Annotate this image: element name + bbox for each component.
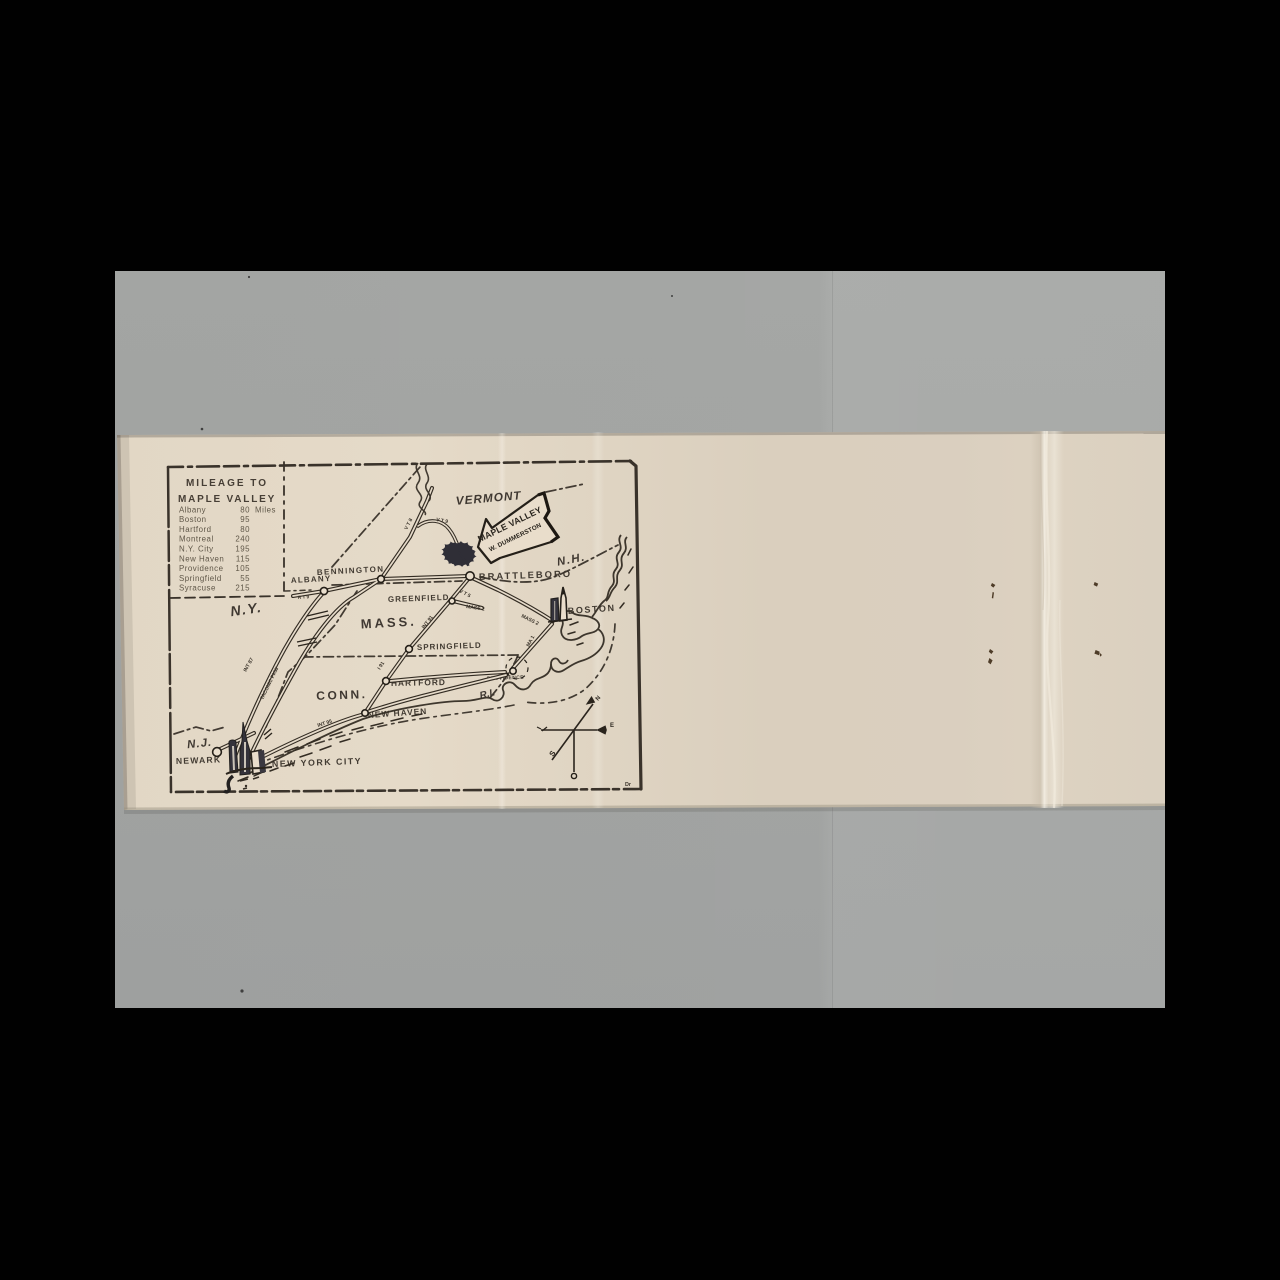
svg-text:Hartford: Hartford	[179, 525, 212, 534]
svg-text:105: 105	[235, 564, 250, 573]
svg-text:Miles: Miles	[255, 505, 276, 514]
svg-text:Providence: Providence	[179, 564, 224, 573]
svg-text:New Haven: New Haven	[179, 554, 224, 563]
svg-text:80: 80	[240, 525, 250, 534]
svg-text:Boston: Boston	[179, 515, 207, 524]
svg-text:MILEAGE TO: MILEAGE TO	[186, 478, 268, 489]
svg-text:E: E	[610, 723, 614, 729]
svg-text:Montreal: Montreal	[179, 535, 214, 544]
svg-text:115: 115	[236, 554, 250, 563]
svg-text:95: 95	[240, 515, 250, 524]
svg-text:Albany: Albany	[179, 505, 206, 514]
svg-text:MAPLE VALLEY: MAPLE VALLEY	[178, 494, 276, 505]
svg-text:240: 240	[235, 535, 250, 544]
svg-text:80: 80	[240, 505, 250, 514]
svg-text:55: 55	[240, 574, 250, 583]
svg-text:Springfield: Springfield	[179, 574, 222, 583]
svg-text:195: 195	[235, 545, 250, 554]
svg-text:Syracuse: Syracuse	[179, 584, 216, 593]
svg-text:CONN.: CONN.	[316, 687, 368, 703]
svg-text:Dr: Dr	[625, 782, 632, 788]
svg-text:R T 9: R T 9	[298, 594, 310, 600]
svg-text:215: 215	[235, 584, 250, 593]
svg-text:MASS.: MASS.	[360, 614, 417, 632]
svg-text:N.Y. City: N.Y. City	[179, 545, 214, 554]
